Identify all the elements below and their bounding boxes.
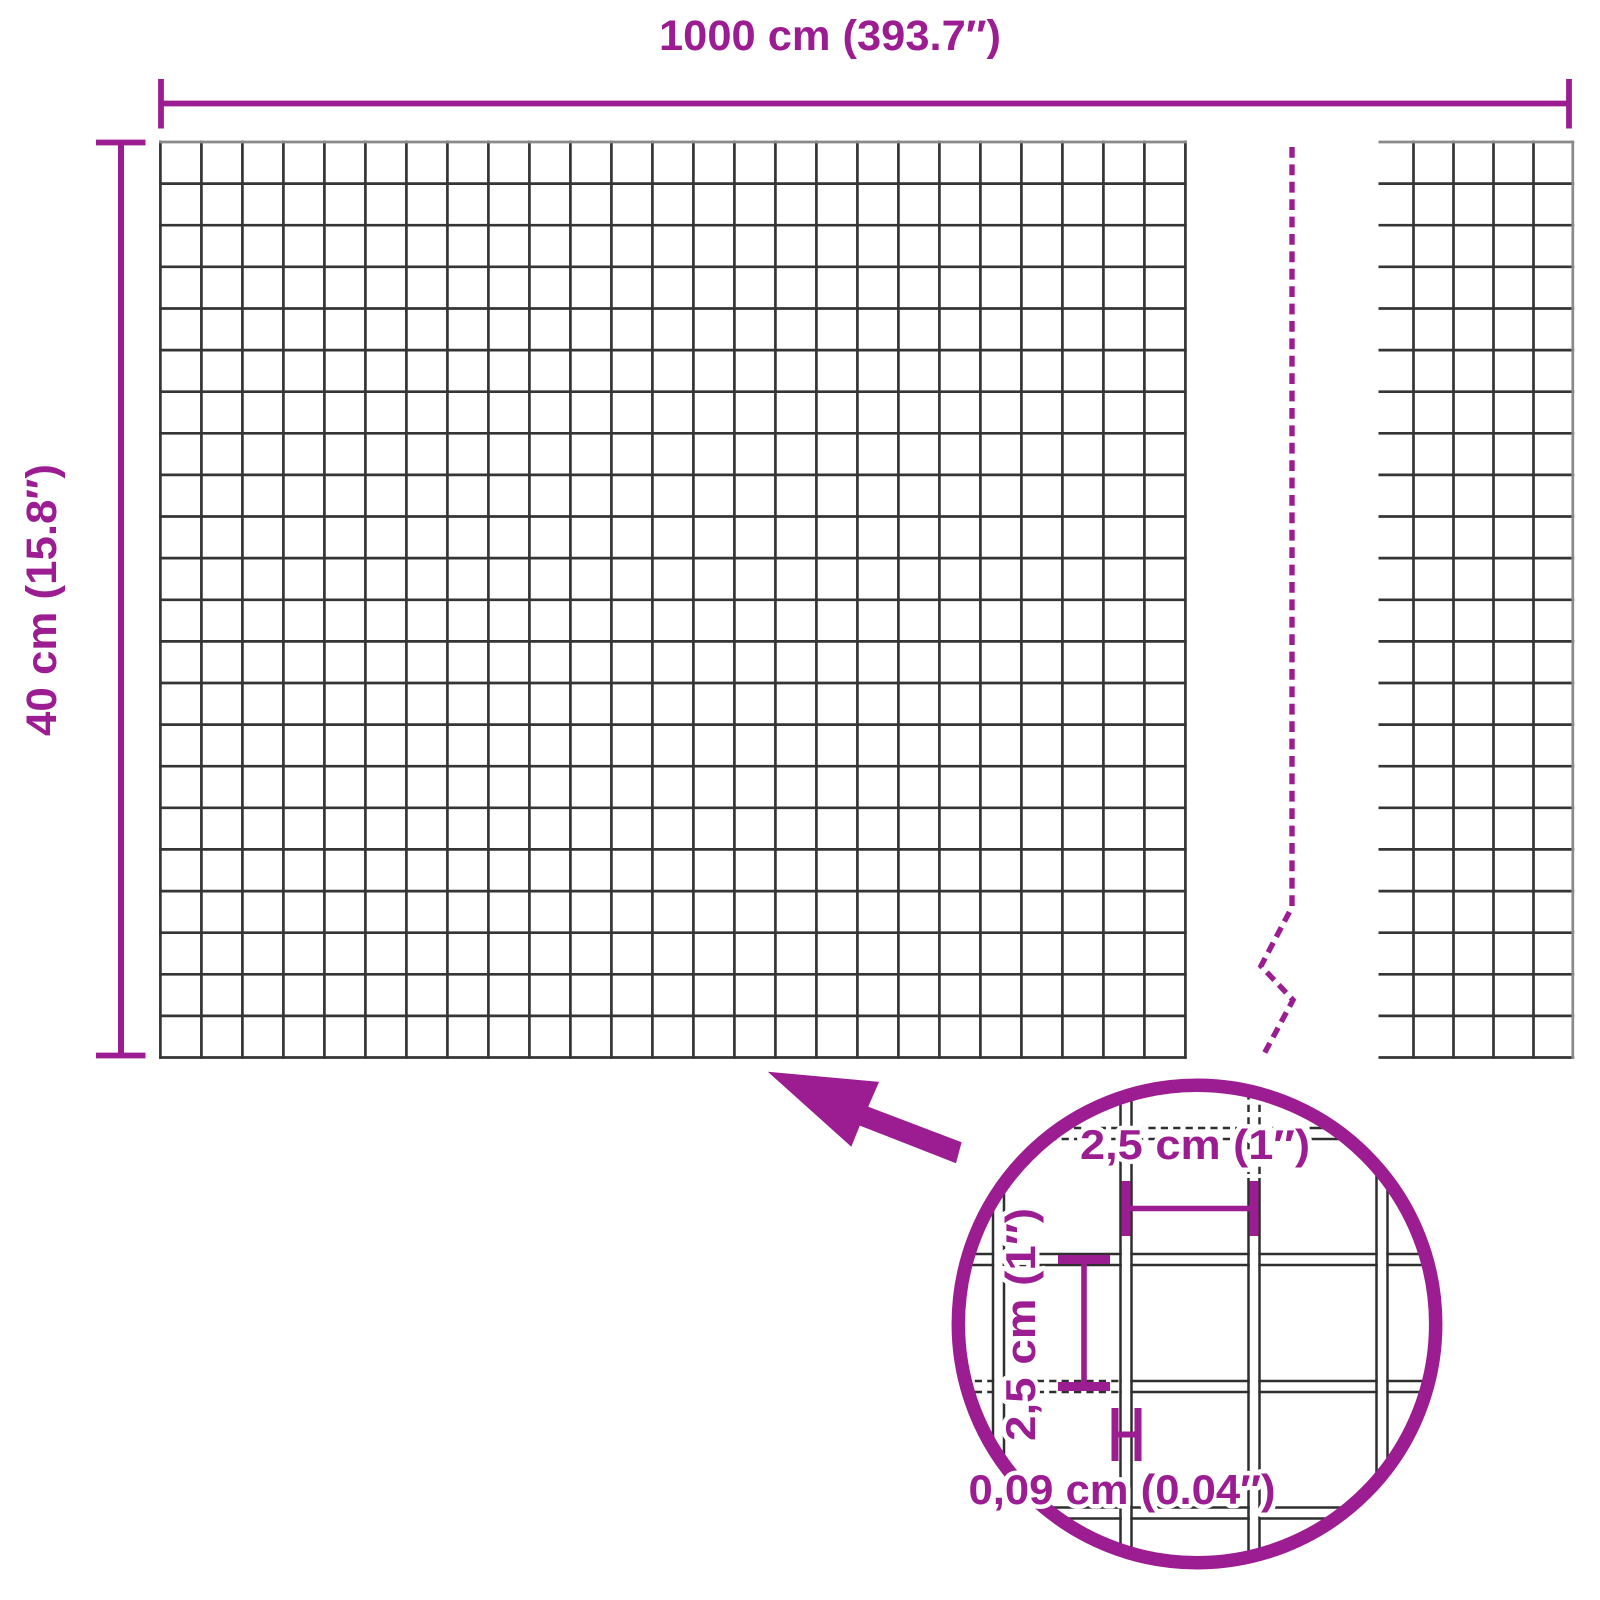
svg-text:0,09 cm (0.04″): 0,09 cm (0.04″) [969, 1466, 1276, 1513]
svg-text:2,5 cm (1″): 2,5 cm (1″) [1080, 1121, 1310, 1168]
svg-text:2,5 cm (1″): 2,5 cm (1″) [997, 1208, 1044, 1441]
svg-text:40 cm (15.8″): 40 cm (15.8″) [18, 464, 66, 736]
svg-text:1000 cm (393.7″): 1000 cm (393.7″) [659, 12, 1001, 60]
